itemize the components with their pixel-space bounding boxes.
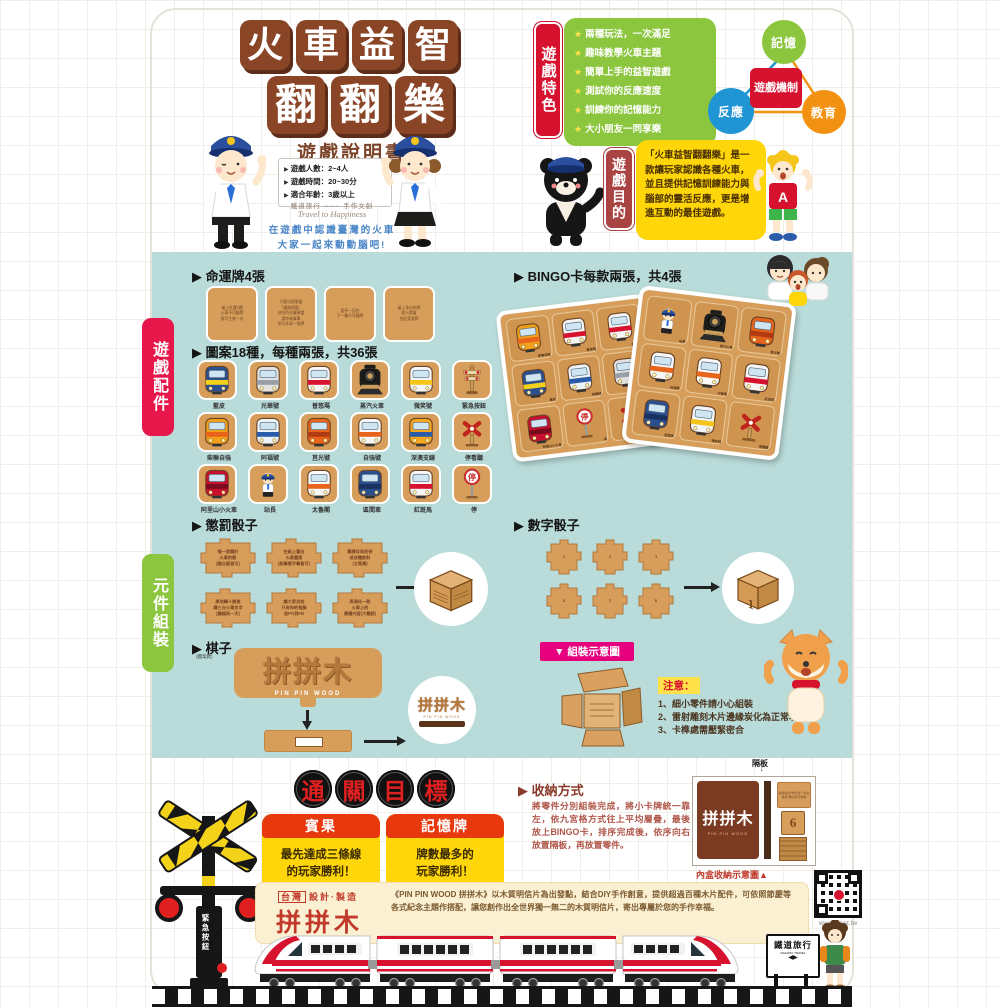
star-icon: ★ [574, 48, 582, 58]
feature-item: ★測試你的反應速度 [574, 82, 706, 101]
poster-page: 火車益智 翻翻樂 遊戲說明書 ▶遊戲人數：2~4人▶遊戲時間：20~30分▶適合… [150, 8, 854, 996]
pattern-card-train [299, 360, 339, 400]
pattern-card-label: 緊急按鈕 [446, 401, 502, 410]
station-master-icon [649, 301, 686, 338]
star-icon: ★ [574, 86, 582, 96]
game-info-row: ▶遊戲時間：20~30分 [284, 176, 386, 189]
pattern-card-train [248, 360, 288, 400]
railway-travel-sign: 鐵道旅行 RAILWAY TRAVEL ◀▶ [766, 934, 820, 978]
pattern-card-train [350, 464, 390, 504]
svg-text:停: 停 [468, 472, 476, 482]
fate-cards-title: ▶ 命運牌4張 [192, 266, 265, 285]
mechanism-diagram: 記憶 反應 教育 遊戲機制 [700, 16, 846, 134]
pattern-card-train [401, 412, 441, 452]
mechanism-node-education: 教育 [802, 90, 846, 134]
punish-dice-title: ▶ 懲罰骰子 [192, 515, 258, 534]
train-icon [201, 364, 233, 396]
train-icon [523, 411, 558, 446]
components-side-tab: 遊戲配件 [142, 318, 174, 436]
arrow-right-icon [684, 586, 712, 589]
bingo-cell: 站長 [643, 295, 693, 345]
pattern-card-train [401, 360, 441, 400]
pattern-card-label: 停 [446, 505, 502, 514]
pattern-card-label: 站長 [242, 505, 298, 514]
storage-caption: 內盒收納示意圖▲ [696, 868, 768, 881]
pattern-card-label: 太魯閣 [293, 505, 349, 514]
star-icon: ★ [574, 67, 582, 77]
game-info-row: ▶遊戲人數：2~4人 [284, 163, 386, 176]
pattern-card-train [299, 464, 339, 504]
fate-cards: 桌上任選1種火車不可翻牌即可生效一次只要出現便當「鐵路便當」好吃的台鐵便當請你來… [206, 286, 442, 342]
bingo-cell: 區間車 [631, 390, 681, 440]
pattern-card-label: 光華號 [242, 401, 298, 410]
game-title-row1: 火車益智 [240, 20, 464, 70]
bingo-cell: 莒光號 [737, 307, 787, 357]
storage-cards-note: 組合好的卡牌 統一靠左放置 疊好即可收納 [777, 782, 811, 808]
pattern-card-label: 紅斑馬 [395, 505, 451, 514]
features-tab: 遊戲特色 [534, 22, 562, 138]
bingo-cell: 太魯閣 [684, 348, 734, 398]
fate-card: 桌上多出的牌放入牌盒由莊家發牌 [383, 286, 435, 342]
goal-title-circle: 標 [417, 770, 455, 808]
purpose-tab: 遊戲目的 [604, 148, 634, 230]
railway-track [152, 986, 852, 1007]
feature-item: ★趣味教學火車主題 [574, 44, 706, 63]
bingo-cell: 普悠瑪 [551, 309, 599, 357]
train-icon [602, 309, 637, 344]
star-icon: ★ [574, 105, 582, 115]
logo-piece: 拼拼木 PIN PIN WOOD [234, 648, 382, 698]
conductor-girl-illustration [380, 122, 450, 250]
bingo-cell: 阿里山小火車 [516, 405, 564, 453]
family-illustration [758, 252, 838, 308]
train-icon [562, 360, 597, 395]
steam-train-icon [354, 364, 386, 396]
shiba-mascot-illustration [764, 628, 848, 738]
title-character-tile: 車 [296, 20, 346, 70]
punish-dice-assembled [414, 552, 488, 626]
star-icon: ★ [574, 124, 582, 134]
arrow-right-icon [364, 740, 398, 743]
pattern-card-label: 阿里山小火車 [191, 505, 247, 514]
bingo-cell: 停看聽 [726, 401, 776, 451]
storage-die: 6 [781, 811, 805, 835]
pattern-card-label: 自強號 [344, 453, 400, 462]
number-dice-title: ▶ 數字骰子 [514, 515, 580, 534]
pattern-card-label: 柴聯自強 [191, 453, 247, 462]
bear-mascot-illustration [532, 150, 604, 250]
number-die-face: 4 [544, 582, 584, 620]
title-character-tile: 翻 [267, 76, 325, 134]
notice-title: 注意： [658, 677, 700, 694]
storage-strip [779, 837, 807, 861]
purpose-text: 「火車益智翻翻樂」是一款讓玩家認識各種火車，並且提供記憶訓練能力與腦部的靈活反應… [636, 140, 766, 240]
train-icon [511, 321, 546, 356]
train-icon [637, 396, 674, 433]
train-icon [252, 416, 284, 448]
punish-die-face: 購買珍珠奶茶或含糖飲料(立馬買) [330, 536, 390, 580]
hiker-illustration [814, 920, 856, 992]
svg-text:停: 停 [580, 411, 589, 422]
train-icon [744, 313, 781, 350]
pattern-card-label: 區間車 [344, 505, 400, 514]
footer-description: 《PIN PIN WOOD 拼拼木》以木質明信片為出發點，結合DIY手作創意，提… [391, 889, 791, 914]
number-die-face: 2 [590, 538, 630, 576]
number-die-face: 3 [636, 538, 676, 576]
storage-text: 將零件分別組裝完成，將小卡牌統一靠左，依九宮格方式往上平均層疊，最後放上BING… [532, 800, 690, 852]
mechanism-center-label: 遊戲機制 [750, 68, 802, 108]
pattern-card-label: 蒸汽火車 [344, 401, 400, 410]
made-in-label: 台灣設計·製造 [278, 890, 358, 903]
fate-card: 只要出現便當「鐵路便當」好吃的台鐵便當請你來買單即可多拿一張牌 [265, 286, 317, 342]
pattern-card-train [350, 412, 390, 452]
pattern-card-label: 普悠瑪 [293, 401, 349, 410]
bingo-card-right: 站長蒸汽火車莒光號自強號太魯閣紅斑馬區間車微笑號停看聽 [621, 285, 797, 461]
train-icon [690, 354, 727, 391]
number-die-face: 1 [544, 538, 584, 576]
train-icon [354, 416, 386, 448]
piece-base [264, 730, 352, 752]
conductor-boy-illustration [196, 122, 266, 250]
pattern-card-label: 莒光號 [293, 453, 349, 462]
assembly-side-tab: 元件組裝 [142, 554, 174, 672]
svg-text:A: A [778, 189, 788, 205]
train-illustration [252, 930, 758, 988]
punish-die-face: 在紙上畫出火車圖案(鉛筆簽字筆皆可) [264, 536, 324, 580]
mechanism-node-reaction: 反應 [708, 88, 754, 134]
punish-die-face: 原地轉十圈後講三台火車名字(講錯再一次) [198, 586, 258, 630]
number-die-face: 5 [590, 582, 630, 620]
train-icon [557, 315, 592, 350]
punish-die-face: 唱一首關於火車的歌(國台語皆可) [198, 536, 258, 580]
pattern-card-person [248, 464, 288, 504]
goal-title-circle: 目 [376, 770, 414, 808]
pattern-card-train [299, 412, 339, 452]
exploded-cube-diagram [548, 666, 648, 752]
bingo-cell: 紅斑馬 [731, 354, 781, 404]
goal-title-circle: 關 [335, 770, 373, 808]
punish-die-face: 讓大家自拍只有你的鬼臉並PO到FB [264, 586, 324, 630]
storage-title: ▶ 收納方式 [518, 780, 584, 799]
steam-train-icon [696, 307, 733, 344]
train-icon [303, 416, 335, 448]
pattern-card-crossing [452, 412, 492, 452]
feature-item: ★兩種玩法，一次滿足 [574, 25, 706, 44]
semaphore-signal-icon [456, 364, 488, 396]
crossing-sign-icon [456, 416, 488, 448]
punish-die-face: 表演任一款火車上的廣播內容(大聲說) [330, 586, 390, 630]
title-character-tile: 益 [352, 20, 402, 70]
pattern-card-train [401, 464, 441, 504]
storage-box-logo: 拼拼木 PIN PIN WOOD [697, 781, 759, 859]
train-icon [201, 416, 233, 448]
station-master-icon [252, 468, 284, 500]
pattern-card-label: 阿福號 [242, 453, 298, 462]
train-icon [643, 349, 680, 386]
train-icon [201, 468, 233, 500]
pattern-card-label: 深澳支線 [395, 453, 451, 462]
crossing-sign-icon [732, 408, 769, 445]
bingo-cell: 藍皮 [511, 360, 559, 408]
kid-mascot-illustration: A [752, 150, 814, 245]
pattern-card-stop: 停 [452, 464, 492, 504]
pattern-card-semaphore [452, 360, 492, 400]
sign-arrows-icon: ◀▶ [768, 955, 818, 961]
stop-sign-icon: 停 [568, 406, 603, 441]
pattern-card-label: 藍皮 [191, 401, 247, 410]
assembly-diagram-label: ▼ 組裝示意圖 [540, 642, 634, 661]
divider-arrow-icon: ↓ [760, 766, 764, 773]
storage-box-diagram: 拼拼木 PIN PIN WOOD 組合好的卡牌 統一靠左放置 疊好即可收納 6 [692, 776, 816, 866]
piece-assembled: 拼拼木 PIN PIN WOOD [408, 676, 476, 744]
bingo-cell: 柴聯自強 [505, 314, 553, 362]
number-dice-assembled: 1 6 [722, 552, 794, 624]
qr-code [814, 870, 862, 918]
train-icon [354, 468, 386, 500]
features-list: ★兩種玩法，一次滿足★趣味教學火車主題★簡單上手的益智遊戲★測試你的反應速度★訓… [564, 18, 716, 146]
train-icon [517, 366, 552, 401]
stop-sign-icon: 停 [456, 468, 488, 500]
pattern-card-label: 微笑號 [395, 401, 451, 410]
train-icon [252, 364, 284, 396]
train-icon [303, 468, 335, 500]
feature-item: ★簡單上手的益智遊戲 [574, 63, 706, 82]
title-character-tile: 智 [408, 20, 458, 70]
bingo-cell: 停停 [562, 400, 610, 448]
train-icon [405, 364, 437, 396]
feature-item: ★訓練你的記憶能力 [574, 101, 706, 120]
train-icon [303, 364, 335, 396]
fate-card: 桌上任選1種火車不可翻牌即可生效一次 [206, 286, 258, 342]
storage-divider [764, 781, 771, 859]
number-die-face: 6 [636, 582, 676, 620]
bingo-cell: 自強號 [637, 342, 687, 392]
piece-base-assembled [419, 721, 465, 727]
pattern-card-train [197, 360, 237, 400]
feature-item: ★大小朋友一同享樂 [574, 120, 706, 139]
piece-note: (圖案款) [196, 654, 213, 660]
fate-card: 暫停一回合下一輪不可翻牌 [324, 286, 376, 342]
components-section: 遊戲配件 元件組裝 ▶ 命運牌4張 桌上任選1種火車不可翻牌即可生效一次只要出現… [152, 252, 852, 758]
star-icon: ★ [574, 29, 582, 39]
pattern-card-train [197, 412, 237, 452]
pattern-card-train [248, 412, 288, 452]
bingo-cell: 蒸汽火車 [690, 301, 740, 351]
train-icon [685, 402, 722, 439]
mechanism-node-memory: 記憶 [762, 20, 806, 64]
bingo-cell: 阿福號 [556, 354, 604, 402]
pattern-cards-title: ▶ 圖案18種，每種兩張，共36張 [192, 342, 378, 361]
title-character-tile: 火 [240, 20, 290, 70]
train-icon [738, 360, 775, 397]
bingo-cell: 微笑號 [678, 395, 728, 445]
goal-title-circle: 通 [294, 770, 332, 808]
goal-title-circles: 通關目標 [294, 770, 474, 808]
train-icon [405, 416, 437, 448]
piece-tab [300, 697, 316, 707]
pattern-card-label: 停看聽 [446, 453, 502, 462]
svg-text:1: 1 [748, 596, 754, 613]
emergency-button-label: 緊急按鈕 [200, 914, 211, 952]
poster-scan: { "header": { "marker": "▶", "title_row1… [0, 0, 1000, 1000]
bingo-title: ▶ BINGO卡每款兩張，共4張 [514, 266, 681, 285]
pattern-card-steam [350, 360, 390, 400]
arrow-down-icon [306, 710, 309, 722]
train-icon [405, 468, 437, 500]
pattern-card-train [197, 464, 237, 504]
